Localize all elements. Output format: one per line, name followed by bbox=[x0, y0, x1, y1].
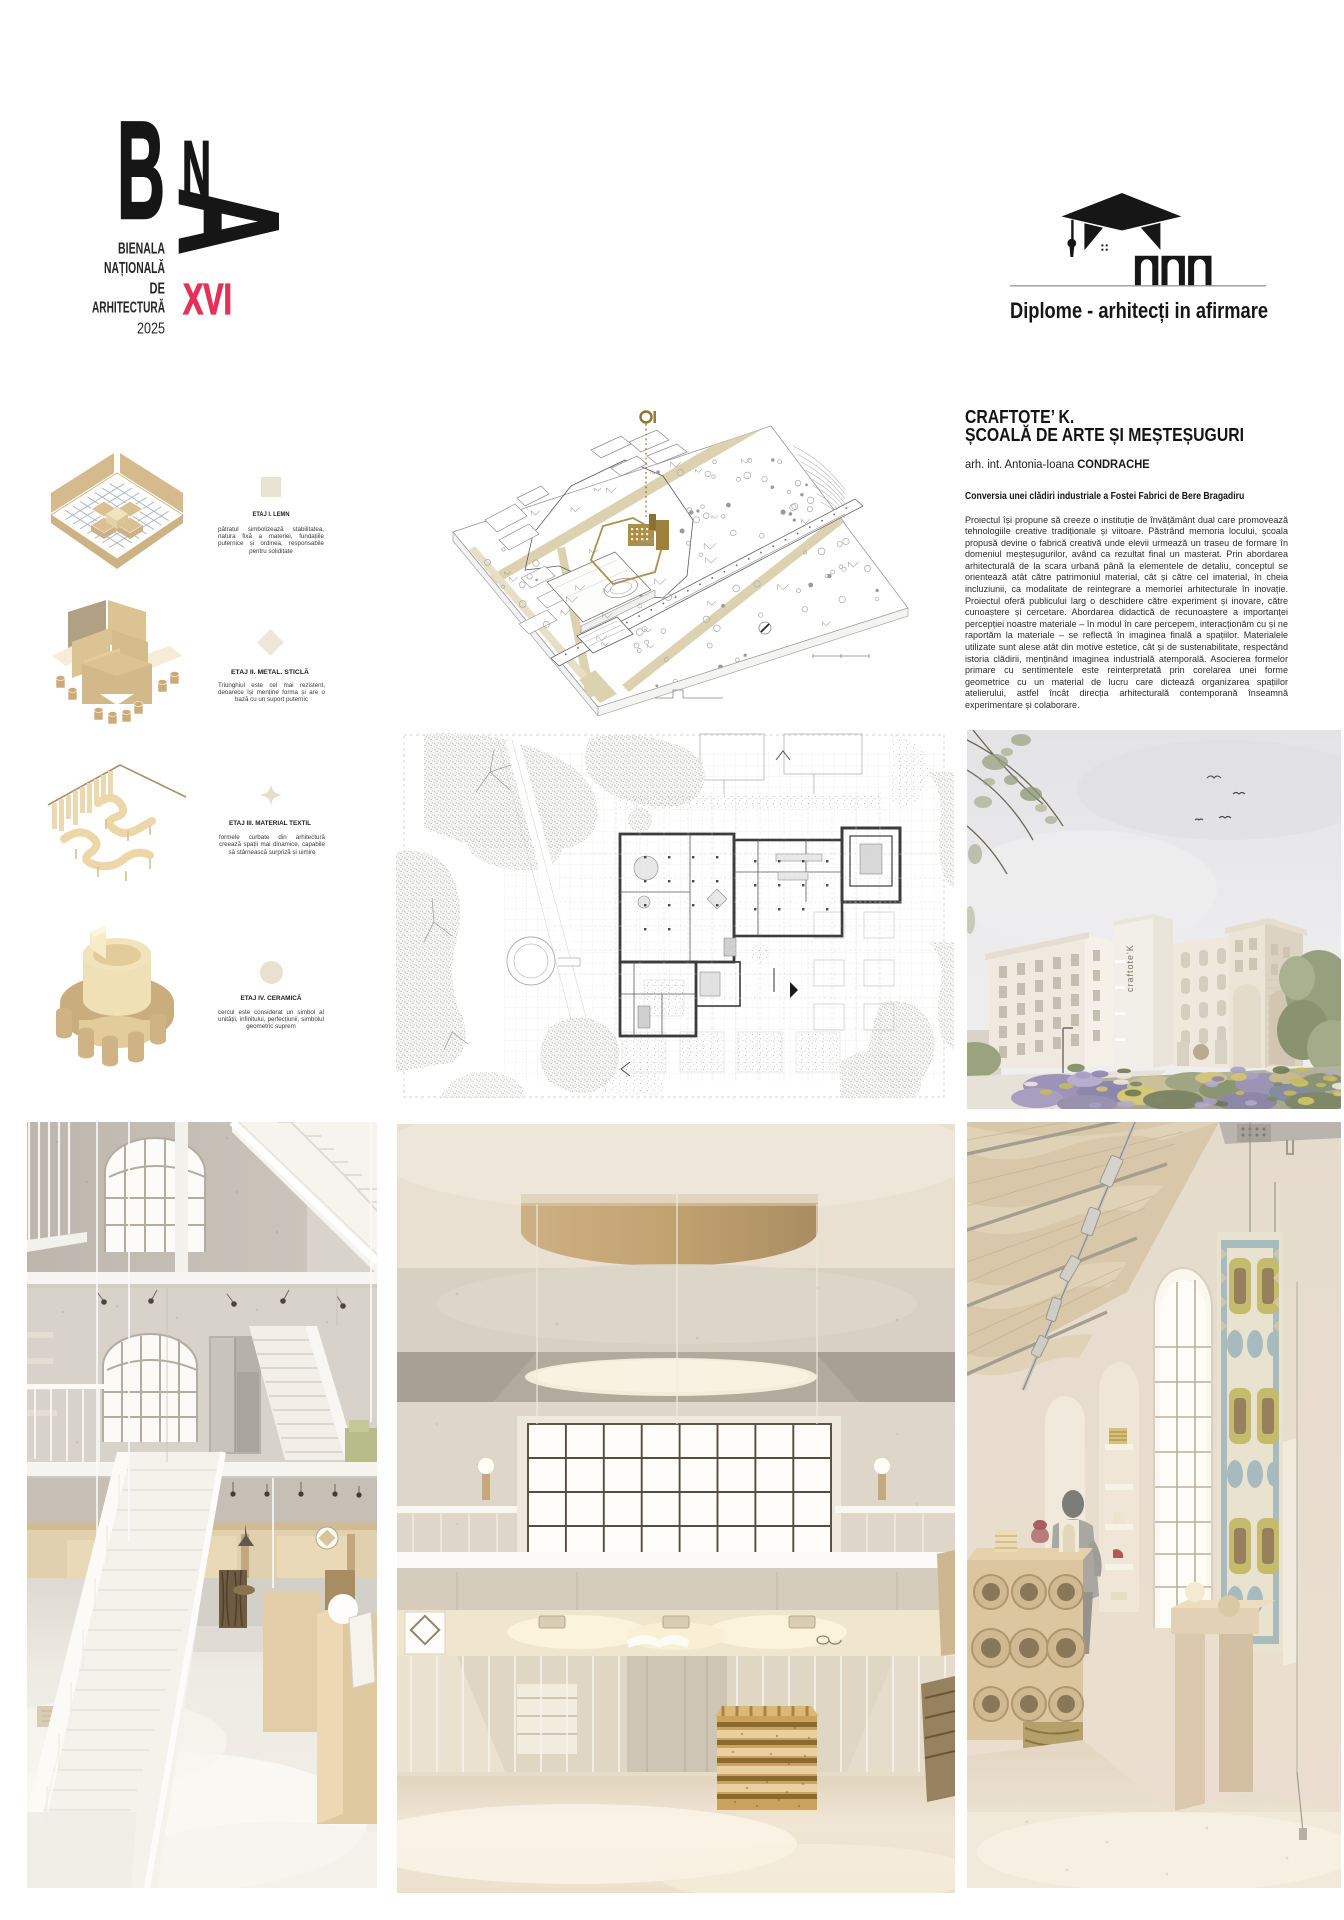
svg-text:ETAJ III. MATERIAL TEXTIL: ETAJ III. MATERIAL TEXTIL bbox=[229, 820, 311, 827]
svg-text:XVI: XVI bbox=[183, 275, 232, 324]
svg-text:2025: 2025 bbox=[137, 321, 165, 338]
svg-text:Diplome - arhitecți in afirmar: Diplome - arhitecți in afirmare bbox=[1010, 298, 1268, 323]
svg-text:craftote'K: craftote'K bbox=[1125, 944, 1135, 992]
svg-text:ARHITECTURĂ: ARHITECTURĂ bbox=[92, 298, 165, 317]
svg-text:DE: DE bbox=[150, 281, 166, 298]
svg-text:A: A bbox=[149, 188, 308, 255]
svg-text:ETAJ I. LEMN: ETAJ I. LEMN bbox=[253, 511, 290, 518]
svg-text:NAȚIONALĂ: NAȚIONALĂ bbox=[104, 258, 165, 277]
svg-text:BIENALA: BIENALA bbox=[118, 241, 165, 258]
svg-text:ETAJ II. METAL. STICLĂ: ETAJ II. METAL. STICLĂ bbox=[231, 667, 309, 676]
svg-text:ETAJ IV. CERAMICĂ: ETAJ IV. CERAMICĂ bbox=[241, 993, 302, 1002]
